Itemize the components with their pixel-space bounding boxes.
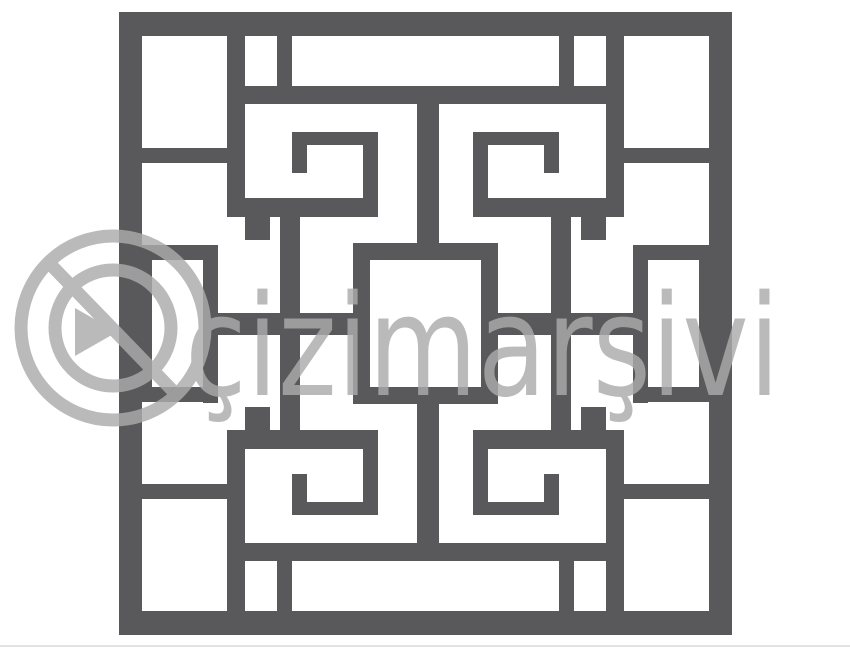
lattice-bar <box>606 430 624 611</box>
lattice-bar <box>473 430 606 449</box>
bottom-edge-line <box>0 645 850 647</box>
lattice-bar <box>245 217 270 240</box>
lattice-bar <box>292 502 378 515</box>
lattice-bar <box>581 217 606 240</box>
watermark-text: çizimarşivi <box>185 266 780 429</box>
lattice-svg: çizimarşivi <box>0 0 850 648</box>
lattice-bar <box>292 132 378 145</box>
lattice-bar <box>292 474 307 502</box>
watermark-logo-icon <box>21 236 205 420</box>
lattice-bar <box>544 145 559 173</box>
lattice-bar <box>606 36 624 217</box>
lattice-bar <box>473 198 606 217</box>
lattice-bar <box>119 484 245 499</box>
lattice-stencil-image: çizimarşivi <box>0 0 850 648</box>
lattice-bar <box>245 430 378 449</box>
lattice-bar <box>559 561 574 611</box>
lattice-bar <box>245 543 606 561</box>
lattice-bar <box>473 132 559 145</box>
lattice-bar <box>245 198 378 217</box>
lattice-bar <box>417 104 439 243</box>
lattice-bar <box>473 502 559 515</box>
lattice-bar <box>473 145 488 198</box>
lattice-bar <box>227 430 245 611</box>
lattice-bar <box>277 561 292 611</box>
lattice-bar <box>227 36 245 217</box>
lattice-bar <box>559 36 574 86</box>
lattice-bar <box>119 36 142 611</box>
lattice-bar <box>363 449 378 502</box>
lattice-bar <box>606 484 732 499</box>
lattice-bar <box>292 145 307 173</box>
lattice-bar <box>606 148 732 163</box>
lattice-bar <box>119 12 732 36</box>
lattice-bar <box>473 449 488 502</box>
lattice-bar <box>119 611 732 635</box>
lattice-bar <box>245 86 606 104</box>
lattice-bar <box>353 243 498 260</box>
lattice-bar <box>544 474 559 502</box>
lattice-bar <box>363 145 378 198</box>
lattice-bar <box>277 36 292 86</box>
lattice-bar <box>119 148 245 163</box>
